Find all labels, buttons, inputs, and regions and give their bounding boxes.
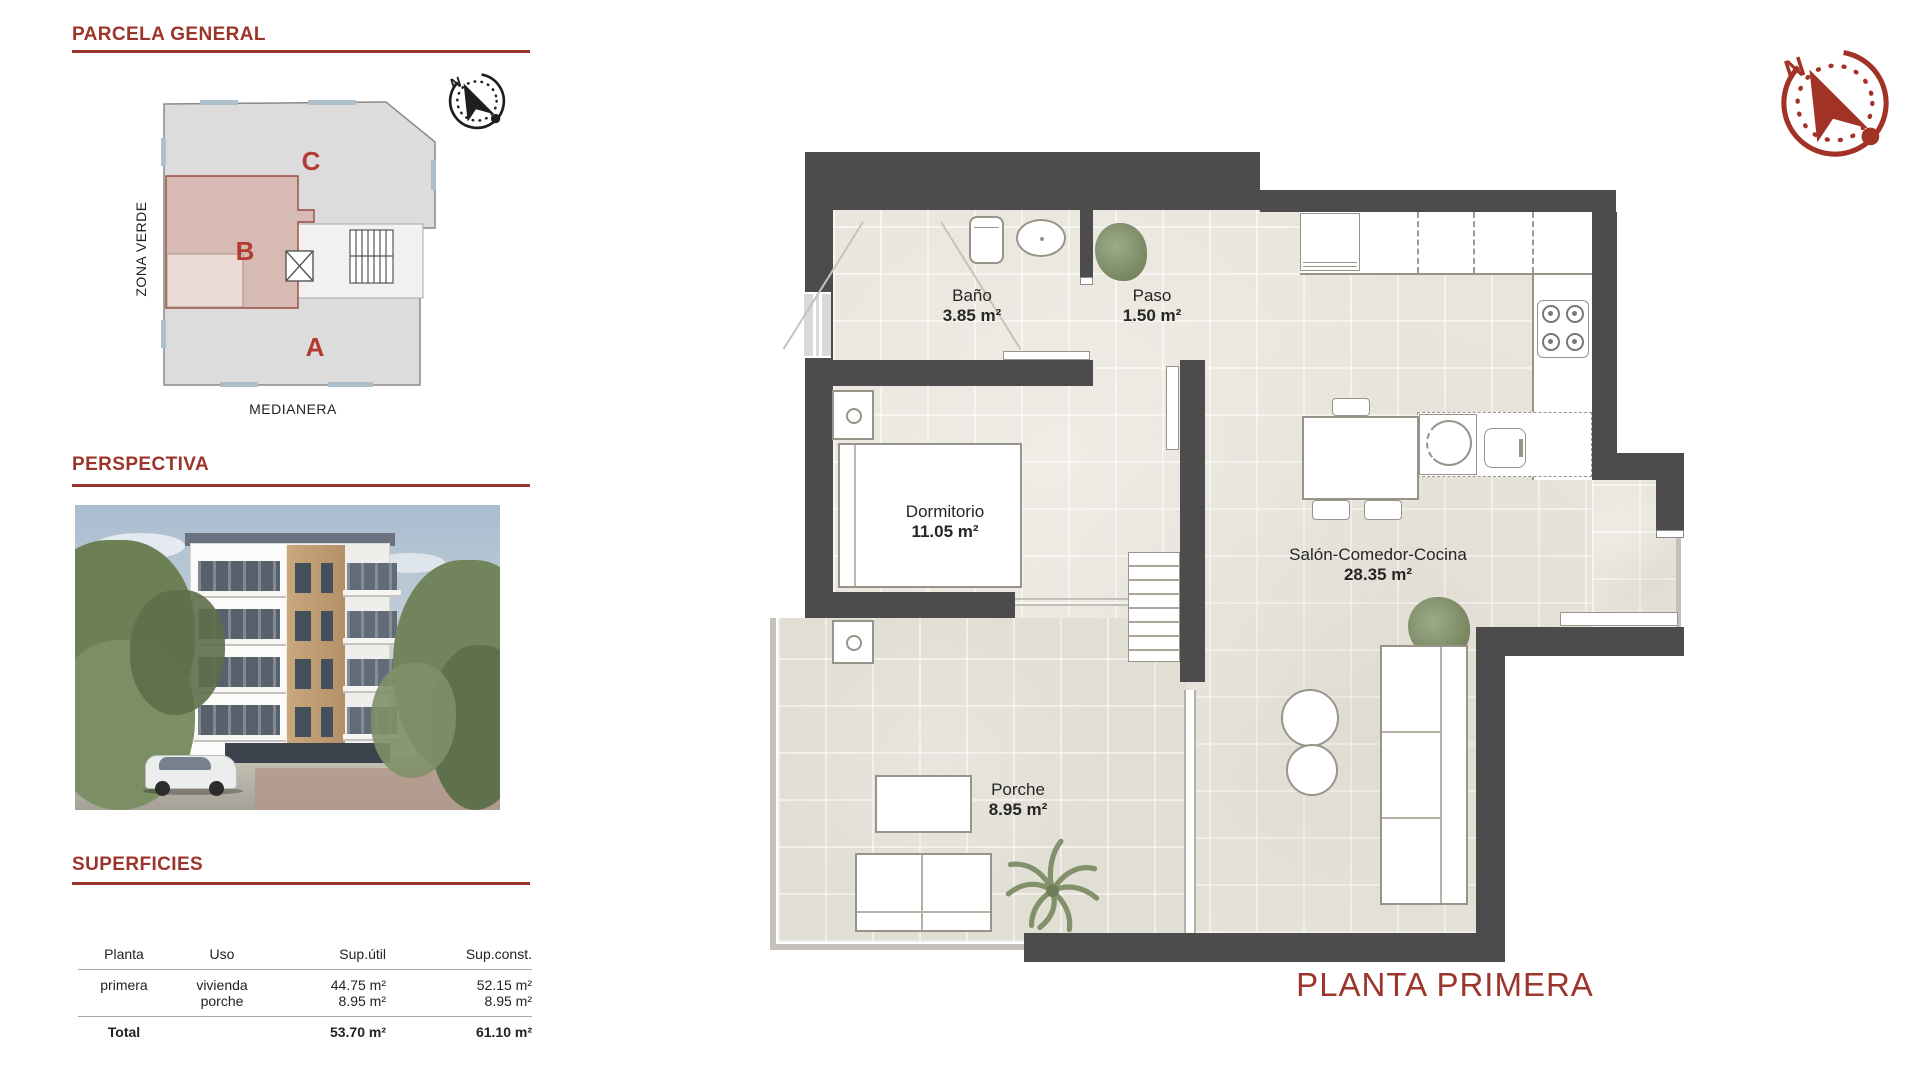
total-sup-const: 61.10 m² xyxy=(386,1022,532,1042)
building-render xyxy=(75,505,500,810)
ground-floor xyxy=(225,743,390,763)
col-header-sup-util: Sup.útil xyxy=(274,944,386,964)
wall-cap xyxy=(1656,530,1684,538)
cabinet-line xyxy=(1473,212,1475,273)
balcony-slab xyxy=(194,591,286,598)
table-rule xyxy=(78,1016,532,1017)
plan-title: PLANTA PRIMERA xyxy=(1296,966,1594,1004)
cabinet-line xyxy=(1417,212,1419,273)
wall-middle xyxy=(1180,360,1205,682)
plant-icon xyxy=(1095,223,1147,281)
wall-paso-divider xyxy=(1080,210,1093,277)
total-sup-util: 53.70 m² xyxy=(274,1022,386,1042)
toilet xyxy=(969,216,1004,264)
palm-tree-icon xyxy=(1000,833,1105,938)
room-label-salon: Salón-Comedor-Cocina 28.35 m² xyxy=(1289,545,1467,585)
car-wheel xyxy=(209,781,224,796)
wall-top xyxy=(1260,190,1616,212)
washing-machine xyxy=(1419,414,1477,475)
wall-left xyxy=(805,210,833,592)
window xyxy=(295,563,311,593)
cell-uso: vivienda porche xyxy=(170,975,274,1011)
util-porche: 8.95 m² xyxy=(339,993,386,1009)
fridge xyxy=(1300,213,1360,271)
room-label-paso: Paso 1.50 m² xyxy=(1123,286,1182,326)
wall-top xyxy=(805,152,1260,210)
wall-right-outer xyxy=(1656,480,1684,530)
chair xyxy=(1312,500,1350,520)
window xyxy=(321,659,333,689)
window xyxy=(321,707,333,737)
divider xyxy=(72,882,530,885)
room-area: 28.35 m² xyxy=(1289,565,1467,585)
col-header-uso: Uso xyxy=(170,944,274,964)
window-bano xyxy=(804,292,831,358)
room-name: Paso xyxy=(1123,286,1182,306)
total-label: Total xyxy=(78,1022,170,1042)
zone-c-label: C xyxy=(302,146,321,176)
divider xyxy=(72,484,530,487)
door-leaf xyxy=(1166,366,1179,450)
north-letter: N xyxy=(1780,50,1808,86)
room-area: 1.50 m² xyxy=(1123,306,1182,326)
round-table xyxy=(1281,689,1339,747)
surfaces-table: Planta Uso Sup.útil Sup.const. primera v… xyxy=(78,944,532,1042)
window xyxy=(295,707,311,737)
porche-edge xyxy=(770,618,776,950)
bench xyxy=(1560,612,1678,626)
uso-vivienda: vivienda xyxy=(196,977,247,993)
chair xyxy=(1364,500,1402,520)
lounger xyxy=(855,853,992,932)
room-label-bano: Baño 3.85 m² xyxy=(943,286,1002,326)
divider xyxy=(72,50,530,53)
kitchen-sink xyxy=(1484,428,1526,468)
total-spacer xyxy=(170,1022,274,1042)
car-window xyxy=(159,757,211,770)
wall-bano-south xyxy=(805,360,1093,386)
room-name: Dormitorio xyxy=(906,502,984,522)
dining-table xyxy=(1302,416,1419,500)
stove xyxy=(1537,300,1589,358)
window xyxy=(295,611,311,641)
exterior-mask xyxy=(1505,656,1685,933)
elevator-icon xyxy=(286,251,313,281)
porche-table xyxy=(875,775,972,833)
shelving-unit xyxy=(1128,552,1180,662)
col-header-planta: Planta xyxy=(78,944,170,964)
chair xyxy=(1332,398,1370,416)
const-porche: 8.95 m² xyxy=(485,993,532,1009)
sink xyxy=(1016,219,1066,257)
section-title-parcela: PARCELA GENERAL xyxy=(72,24,266,46)
floor-plan-sheet: PARCELA GENERAL C B A ZONA VER xyxy=(0,0,1920,1080)
site-plan: C B A xyxy=(158,98,458,398)
cell-planta: primera xyxy=(78,975,170,1011)
sofa xyxy=(1380,645,1468,905)
const-vivienda: 52.15 m² xyxy=(477,977,532,993)
nightstand xyxy=(832,390,874,440)
window xyxy=(321,563,333,593)
balcony-glazing xyxy=(347,611,397,638)
wall-salon-east xyxy=(1476,627,1684,656)
zone-b-label: B xyxy=(236,236,255,266)
zona-verde-label: ZONA VERDE xyxy=(133,194,149,304)
zone-b-annex xyxy=(167,254,243,307)
glazed-partition xyxy=(1184,690,1196,933)
room-label-dormitorio: Dormitorio 11.05 m² xyxy=(906,502,984,542)
window xyxy=(321,611,333,641)
north-letter: N xyxy=(449,74,464,92)
section-title-perspectiva: PERSPECTIVA xyxy=(72,454,209,476)
stairs-icon xyxy=(350,230,393,283)
room-name: Porche xyxy=(989,780,1048,800)
room-area: 8.95 m² xyxy=(989,800,1048,820)
cell-sup-const: 52.15 m² 8.95 m² xyxy=(386,975,532,1011)
zone-a-label: A xyxy=(306,332,325,362)
north-compass-icon: N xyxy=(1776,44,1894,162)
wall-right xyxy=(1590,212,1617,480)
wall-dormitorio-south xyxy=(805,592,1015,618)
balcony-glazing xyxy=(198,705,280,735)
balcony-glazing xyxy=(198,561,280,591)
cabinet-line xyxy=(1532,212,1534,273)
balcony-glazing xyxy=(347,563,397,590)
shelf xyxy=(1003,351,1090,360)
balcony-slab xyxy=(343,638,401,645)
util-vivienda: 44.75 m² xyxy=(331,977,386,993)
room-name: Salón-Comedor-Cocina xyxy=(1289,545,1467,565)
table-rule xyxy=(78,969,532,970)
room-name: Baño xyxy=(943,286,1002,306)
car-wheel xyxy=(155,781,170,796)
room-area: 11.05 m² xyxy=(906,522,984,542)
balcony-slab xyxy=(194,735,286,742)
wall-cap xyxy=(1080,277,1093,285)
room-area: 3.85 m² xyxy=(943,306,1002,326)
porche-edge xyxy=(770,944,1024,950)
wall-salon-east xyxy=(1476,656,1505,933)
window xyxy=(295,659,311,689)
side-table xyxy=(832,620,874,664)
section-title-superficies: SUPERFICIES xyxy=(72,854,203,876)
north-compass-icon: N xyxy=(446,70,508,132)
balcony-slab xyxy=(343,590,401,597)
medianera-label: MEDIANERA xyxy=(193,401,393,417)
room-label-porche: Porche 8.95 m² xyxy=(989,780,1048,820)
wall-right-step xyxy=(1590,453,1684,480)
cell-sup-util: 44.75 m² 8.95 m² xyxy=(274,975,386,1011)
round-table xyxy=(1286,744,1338,796)
uso-porche: porche xyxy=(201,993,244,1009)
col-header-sup-const: Sup.const. xyxy=(386,944,532,964)
